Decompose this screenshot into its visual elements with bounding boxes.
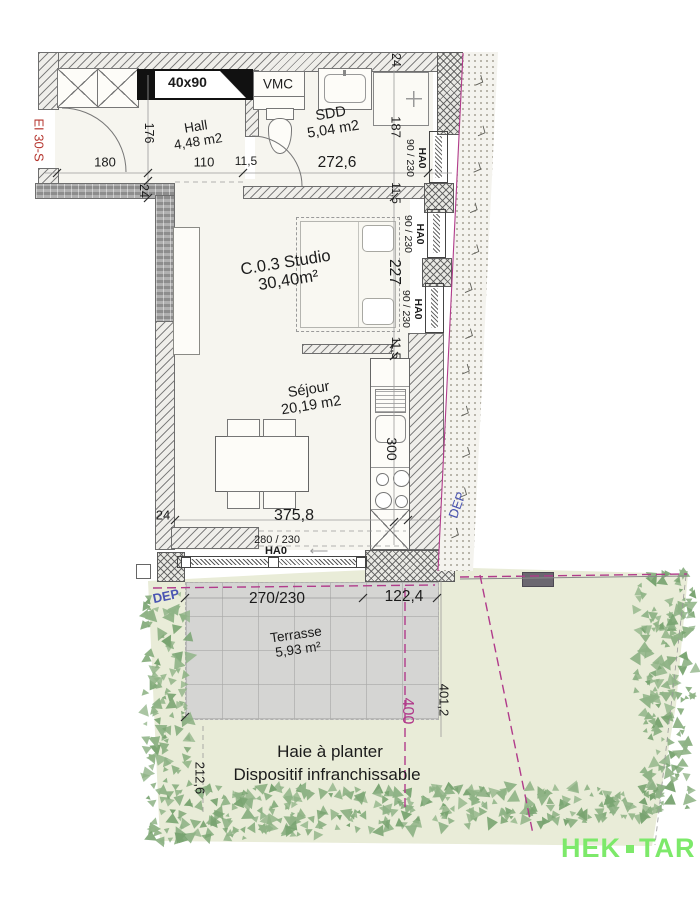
cooktop-burner xyxy=(375,492,392,509)
wall-hall-bottom xyxy=(35,183,175,199)
window-1-size: 90 / 230 xyxy=(404,139,416,177)
hedge-note-line2: Dispositif infranchissable xyxy=(233,765,420,785)
vmc-label: VMC xyxy=(263,77,293,92)
dim-401-2: 401,2 xyxy=(437,684,452,717)
floor-plan: 40x90 xyxy=(0,0,700,907)
dim-11-5-right-a: 11,5 xyxy=(389,182,401,204)
shower-faucet-cross xyxy=(406,91,422,107)
window-3-tag: HA0 xyxy=(412,298,424,319)
dim-122-4: 122,4 xyxy=(385,588,424,606)
cooktop-burner xyxy=(395,495,408,508)
dim-400: 400 xyxy=(398,698,416,725)
bed-head-line xyxy=(358,222,359,327)
fire-rating-label: EI 30-S xyxy=(32,118,47,161)
reservation-label: 40x90 xyxy=(155,71,220,98)
bay-tag-ha0: HA0 xyxy=(265,545,287,557)
kitchen-divider xyxy=(371,467,409,468)
sdd-sink-basin xyxy=(324,74,366,103)
dim-212-6: 212,6 xyxy=(193,762,208,795)
kitchen-unit-x xyxy=(371,509,409,550)
chair xyxy=(263,419,296,437)
dim-180: 180 xyxy=(94,155,116,170)
bay-post-center xyxy=(268,557,279,568)
wall-right-lower xyxy=(408,333,444,550)
dim-24-hall: 24 xyxy=(137,184,151,198)
hektar-logo: HEKTAR xyxy=(561,833,696,864)
dim-176: 176 xyxy=(142,123,156,144)
bed-pillow-1 xyxy=(362,225,394,252)
dim-187: 187 xyxy=(389,116,404,138)
sdd-sink-tap xyxy=(343,70,346,76)
window-2-tag: HA0 xyxy=(414,223,426,244)
dim-110: 110 xyxy=(194,155,215,170)
dim-11-5-top: 11,5 xyxy=(235,154,257,168)
chair xyxy=(227,419,260,437)
cooktop-burner xyxy=(376,473,389,486)
boundary-pillar xyxy=(522,572,554,587)
dim-272-6: 272,6 xyxy=(318,154,357,172)
dim-375-8: 375,8 xyxy=(274,507,314,525)
bay-arrow: ⟵ xyxy=(310,543,329,559)
dim-270-230: 270/230 xyxy=(249,590,305,608)
dim-24-top-right: 24 xyxy=(389,53,403,67)
reservation-black-block xyxy=(139,71,155,98)
bed-pillow-2 xyxy=(362,298,394,325)
bay-post-left xyxy=(181,557,191,568)
dim-24-sejour: 24 xyxy=(156,508,170,523)
kitchen-divider xyxy=(371,386,409,387)
wardrobe xyxy=(173,227,200,355)
closet-right xyxy=(97,68,139,108)
logo-square-dot-icon xyxy=(626,845,634,853)
reservation-box: 40x90 xyxy=(137,69,253,100)
logo-left: HEK xyxy=(561,833,621,863)
dim-227: 227 xyxy=(385,259,403,285)
partition-stub xyxy=(302,344,392,354)
cooktop-burner xyxy=(393,470,410,487)
window-3-size: 90 / 230 xyxy=(400,290,412,328)
window-2-size: 90 / 230 xyxy=(402,215,414,253)
dim-300: 300 xyxy=(384,437,400,460)
bay-post-right xyxy=(356,557,366,568)
window-ha0-2 xyxy=(427,209,446,258)
closet-left xyxy=(57,68,99,108)
window-ha0-1 xyxy=(429,131,448,183)
dining-table xyxy=(215,436,309,492)
chair xyxy=(227,491,260,509)
wall-studio-left-brick xyxy=(155,195,175,323)
reservation-wedge xyxy=(220,71,251,98)
window-ha0-3 xyxy=(425,283,444,333)
window-1-tag: HA0 xyxy=(416,147,428,168)
small-post xyxy=(136,564,151,579)
kitchen-sink-drainer xyxy=(375,389,406,413)
logo-right: TAR xyxy=(639,833,696,863)
hedge-note-line1: Haie à planter xyxy=(277,742,383,762)
dim-11-5-right-b: 11,5 xyxy=(389,337,403,359)
wall-left-upper xyxy=(38,52,59,110)
wall-sejour-bottom-left xyxy=(171,527,259,549)
